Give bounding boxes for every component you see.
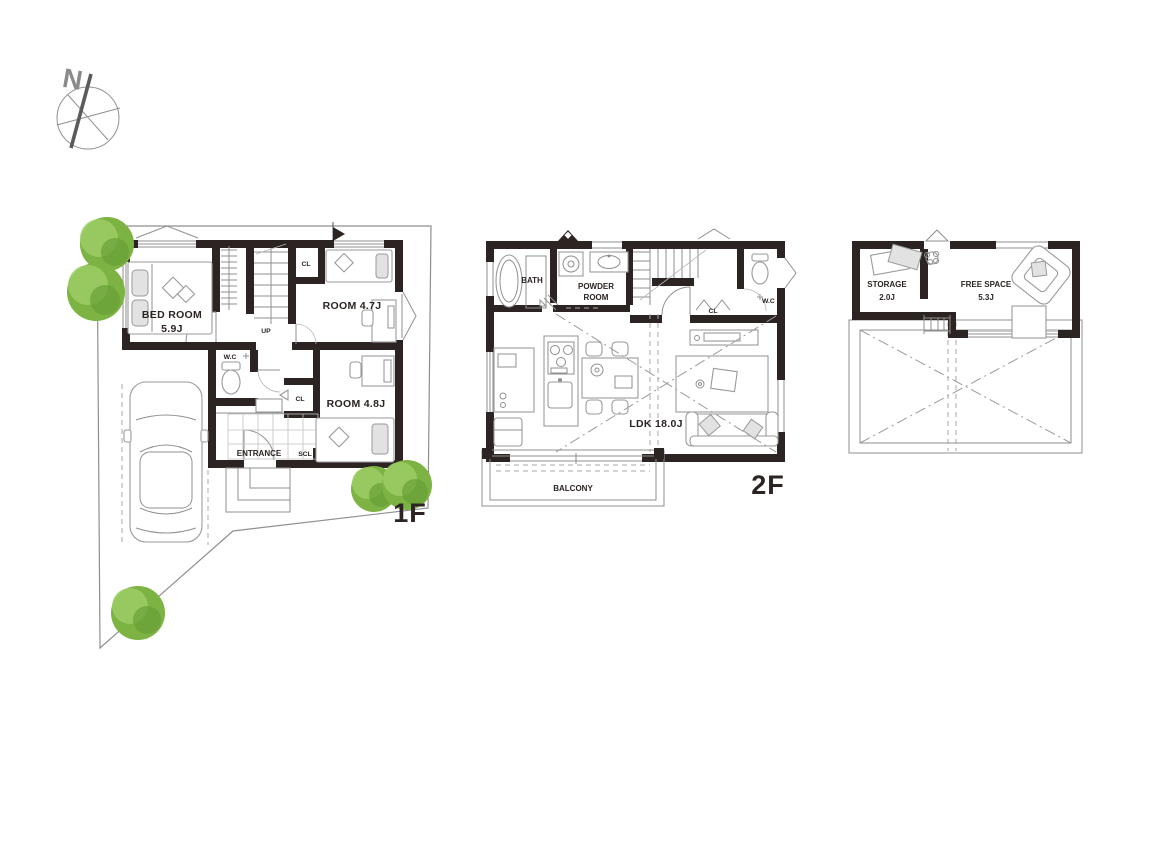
vent-flag (558, 230, 578, 241)
stairs-up-label: UP (261, 328, 271, 335)
bay-window (785, 258, 796, 288)
single-bed-b (316, 418, 394, 462)
entrance-label: ENTRANCE (237, 449, 282, 458)
storage-label: STORAGE (867, 280, 907, 289)
bedroom-label: BED ROOM (142, 309, 202, 321)
roof-deck (849, 320, 1082, 453)
dining-table (582, 342, 638, 414)
kitchen-island (544, 336, 578, 426)
floor-plan-1f: UP BED ROOM 5.9J (85, 200, 455, 670)
sofa (686, 412, 778, 446)
vent-flag (333, 222, 345, 241)
vent-chevron (136, 226, 198, 238)
tv-board (690, 330, 758, 345)
single-bed-a (326, 250, 392, 282)
closet-2f-label: CL (708, 308, 717, 315)
ldk-label: LDK 18.0J (629, 418, 682, 430)
wc-1f-label: W.C (224, 354, 237, 361)
wc-2f-label: W.C (762, 298, 775, 305)
floor-plan-3f: STORAGE 2.0J FREE SPACE 5.3J (840, 225, 1090, 465)
vent-triangle (926, 230, 948, 241)
shoe-closet-label: SCL (298, 451, 312, 458)
stairs-1f (254, 244, 288, 324)
vent-chevron (698, 229, 730, 239)
car (124, 382, 208, 542)
washing-machine (559, 252, 583, 276)
balcony-label: BALCONY (553, 484, 593, 493)
bath-label: BATH (521, 276, 543, 285)
room-b-label: ROOM 4.8J (327, 398, 386, 410)
closet-b-label: CL (295, 396, 304, 403)
floor-2f-label: 2F (751, 470, 785, 500)
compass-axis-ew (57, 108, 120, 125)
ladder (924, 315, 950, 334)
tree (80, 217, 134, 271)
powder-room-label-1: POWDER (578, 282, 614, 291)
floorplan-sheet: N (0, 0, 1150, 865)
north-label: N (60, 63, 84, 96)
free-space-size-label: 5.3J (978, 293, 994, 302)
bay-window (403, 292, 416, 340)
free-space-label: FREE SPACE (961, 280, 1012, 289)
tree (111, 586, 165, 640)
closet-a-label: CL (301, 261, 310, 268)
tree (67, 263, 125, 321)
powder-room-label-2: ROOM (584, 293, 609, 302)
low-table (676, 356, 768, 412)
closet-hangers (221, 246, 237, 310)
room-a-label: ROOM 4.7J (323, 300, 382, 312)
kitchen-counter (494, 348, 534, 446)
bedroom-size-label: 5.9J (161, 323, 183, 335)
floor-1f-label: 1F (393, 498, 427, 528)
porch-steps (226, 468, 290, 512)
storage-size-label: 2.0J (879, 293, 895, 302)
desk-b (350, 356, 394, 386)
compass-rose: N (35, 50, 145, 160)
armchair (1009, 243, 1074, 308)
side-table (1012, 306, 1046, 338)
floor-plan-2f: BATH POWDER ROOM CL (475, 225, 810, 515)
hall-door (662, 287, 690, 315)
vanity (590, 252, 628, 272)
